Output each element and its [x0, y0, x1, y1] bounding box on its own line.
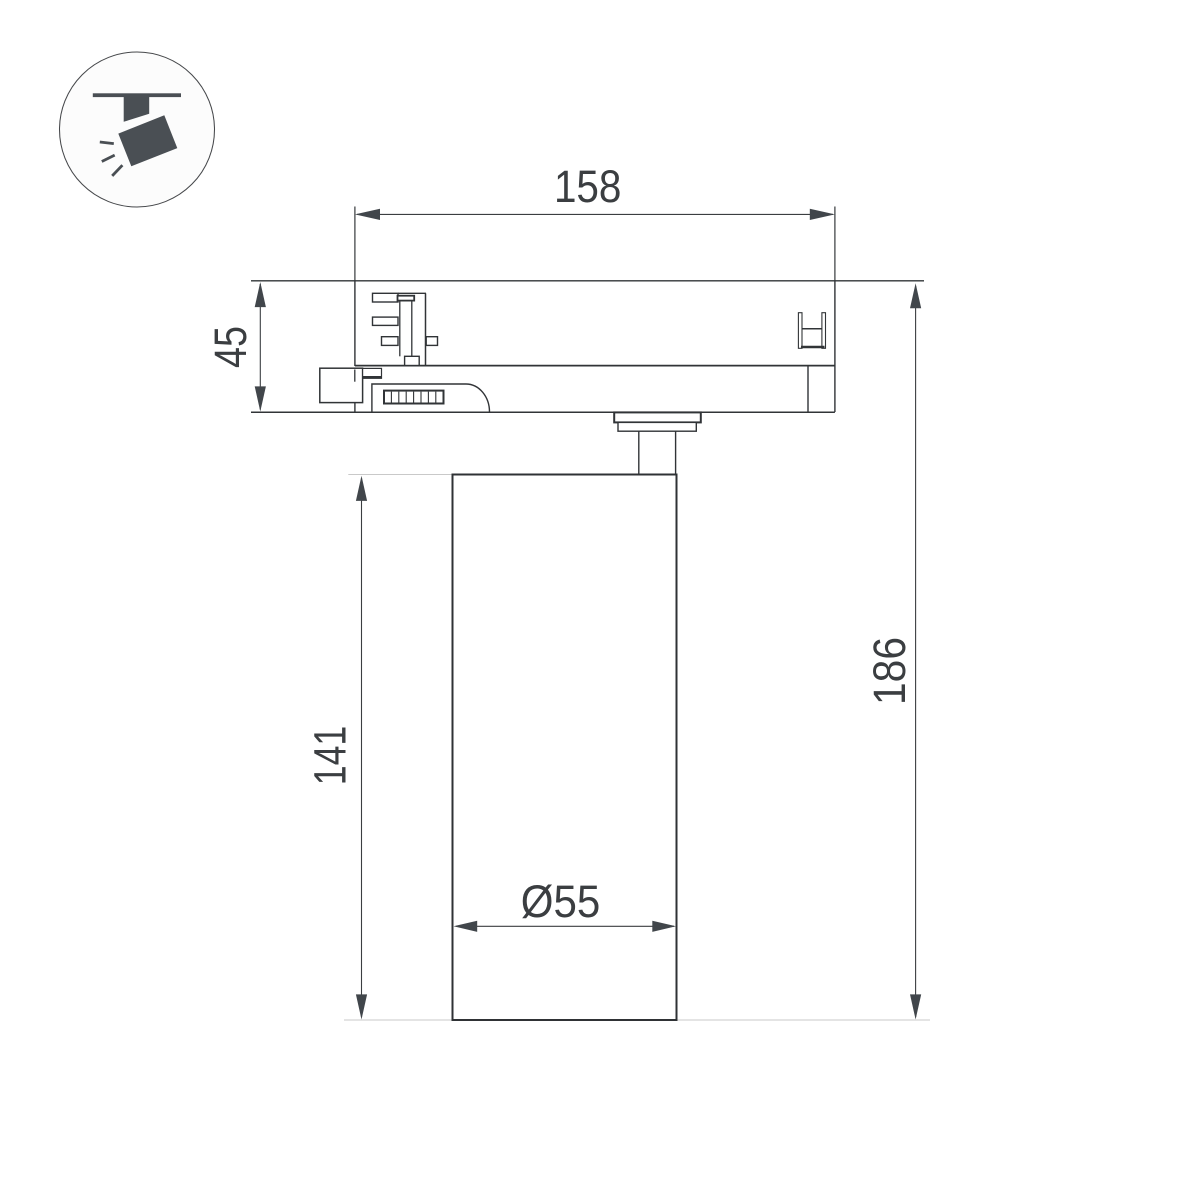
svg-text:186: 186: [864, 637, 915, 705]
svg-text:Ø55: Ø55: [521, 876, 601, 927]
svg-text:158: 158: [554, 161, 622, 212]
svg-text:141: 141: [305, 726, 356, 786]
svg-text:45: 45: [205, 326, 256, 368]
